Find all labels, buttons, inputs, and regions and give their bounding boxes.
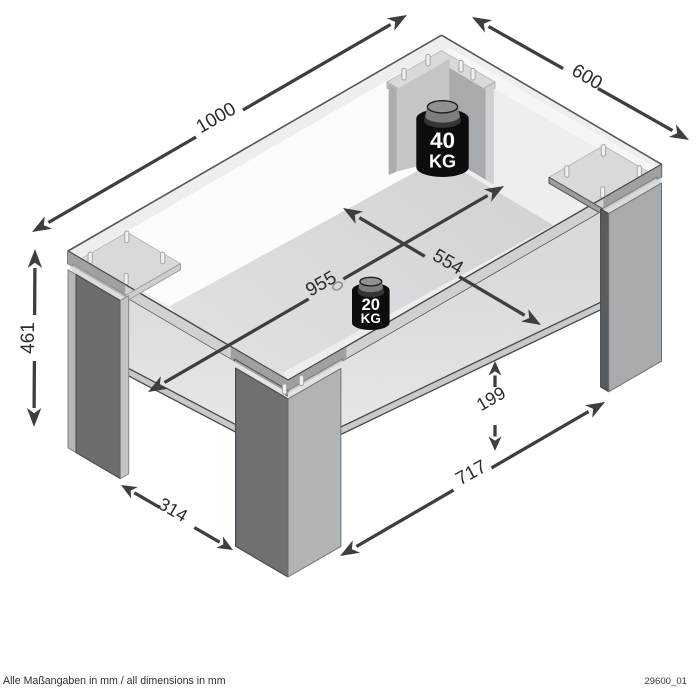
svg-text:KG: KG — [361, 311, 381, 326]
svg-text:40: 40 — [430, 128, 455, 153]
svg-text:Alle Maßangaben in mm / all di: Alle Maßangaben in mm / all dimensions i… — [3, 675, 226, 687]
svg-text:461: 461 — [18, 322, 39, 354]
svg-text:KG: KG — [429, 151, 456, 171]
svg-text:29600_01: 29600_01 — [644, 676, 687, 687]
